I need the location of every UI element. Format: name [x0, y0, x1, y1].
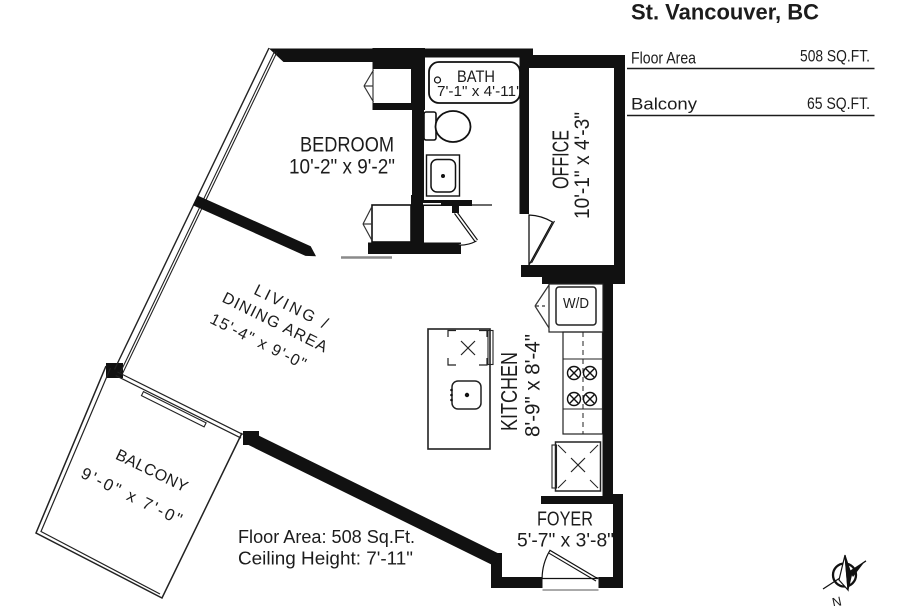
svg-text:Balcony: Balcony	[631, 95, 698, 114]
svg-text:Floor Area: Floor Area	[631, 49, 696, 68]
svg-text:508 SQ.FT.: 508 SQ.FT.	[800, 47, 870, 66]
svg-text:Ceiling Height: 7'-11": Ceiling Height: 7'-11"	[238, 549, 413, 569]
svg-text:10'-2" x 9'-2": 10'-2" x 9'-2"	[289, 155, 395, 179]
svg-text:St. Vancouver, BC: St. Vancouver, BC	[631, 0, 819, 25]
svg-text:BEDROOM: BEDROOM	[300, 134, 394, 157]
svg-text:65 SQ.FT.: 65 SQ.FT.	[807, 94, 870, 113]
svg-text:W/D: W/D	[563, 295, 589, 312]
svg-text:7'-1" x 4'-11': 7'-1" x 4'-11'	[437, 83, 519, 100]
svg-text:OFFICE: OFFICE	[548, 130, 574, 189]
svg-text:FOYER: FOYER	[537, 509, 593, 531]
svg-text:8'-9" x 8'-4": 8'-9" x 8'-4"	[521, 334, 545, 437]
svg-text:Floor Area: 508 Sq.Ft.: Floor Area: 508 Sq.Ft.	[238, 527, 415, 547]
svg-text:5'-7" x 3'-8": 5'-7" x 3'-8"	[517, 530, 614, 552]
svg-text:10'-1" x 4'-3": 10'-1" x 4'-3"	[571, 112, 594, 219]
svg-text:KITCHEN: KITCHEN	[496, 352, 522, 431]
